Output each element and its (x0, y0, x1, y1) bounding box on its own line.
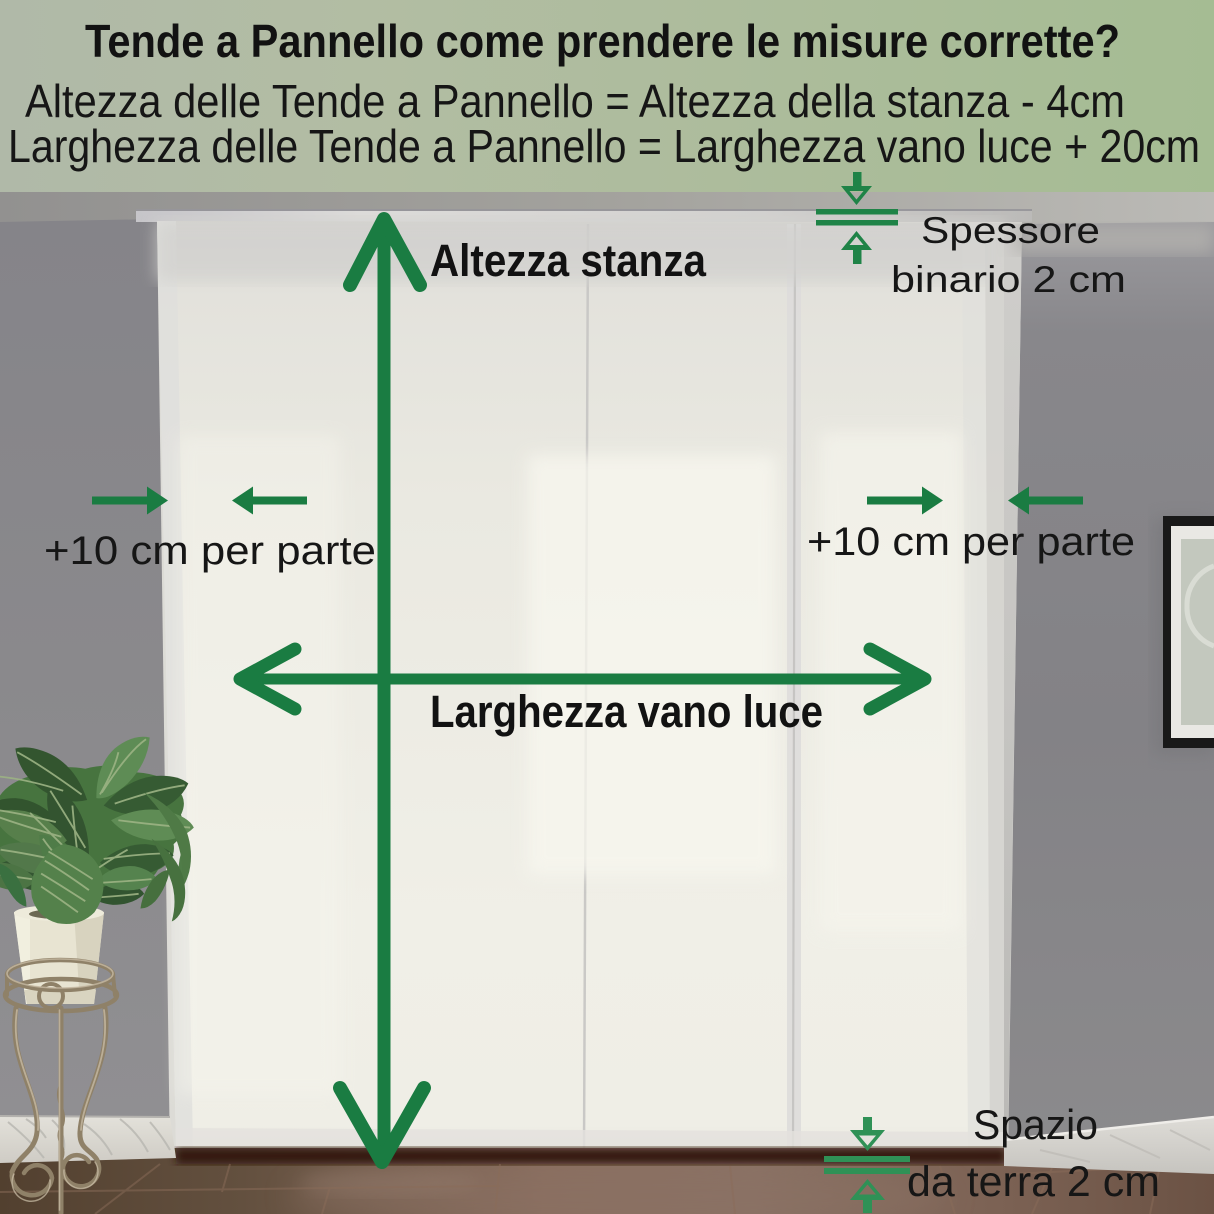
svg-text:Spessore: Spessore (921, 210, 1100, 251)
svg-text:Spazio: Spazio (973, 1101, 1098, 1148)
svg-text:Tende a Pannello come prendere: Tende a Pannello come prendere le misure… (85, 15, 1120, 67)
svg-text:Larghezza delle Tende a Pannel: Larghezza delle Tende a Pannello = Largh… (8, 120, 1200, 172)
svg-text:Larghezza vano luce: Larghezza vano luce (430, 686, 823, 737)
svg-text:binario 2 cm: binario 2 cm (891, 259, 1126, 300)
svg-text:+10 cm per parte: +10 cm per parte (807, 520, 1135, 564)
svg-text:da terra 2 cm: da terra 2 cm (907, 1158, 1160, 1206)
svg-text:Altezza stanza: Altezza stanza (430, 235, 707, 286)
svg-text:+10 cm per parte: +10 cm per parte (44, 529, 376, 573)
